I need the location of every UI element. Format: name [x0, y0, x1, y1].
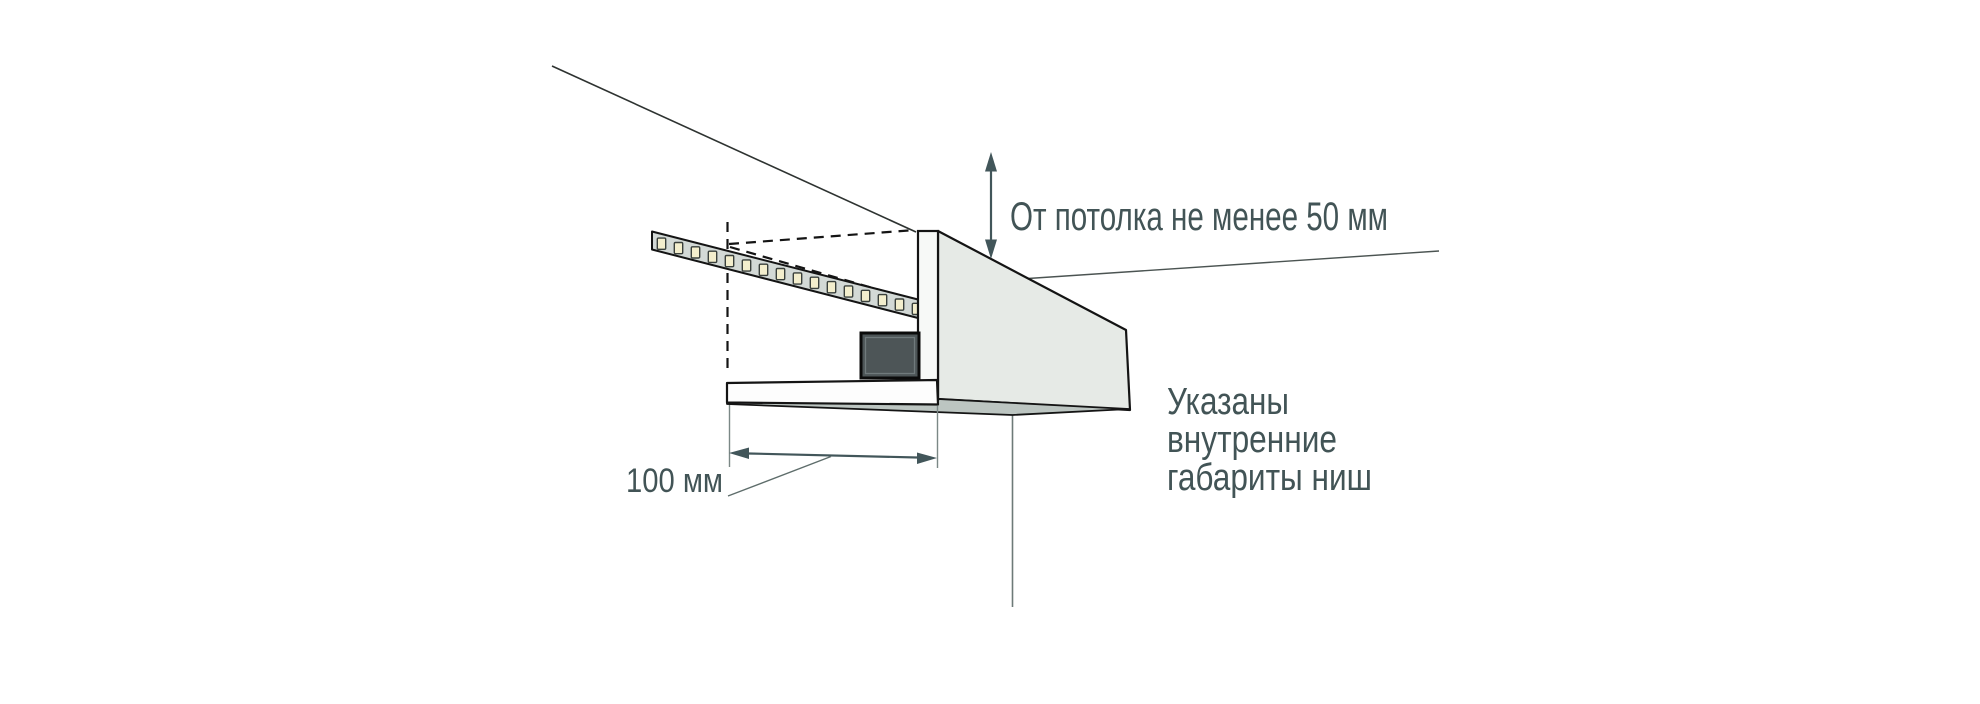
led-chip-icon	[844, 286, 852, 297]
niche-shelf	[727, 380, 938, 405]
led-chip-icon	[708, 251, 716, 262]
niche-lip-panel	[918, 231, 938, 400]
note-line-2: внутренние	[1167, 419, 1337, 461]
led-chip-icon	[776, 269, 784, 280]
arrowhead-right-icon	[917, 453, 937, 465]
led-chip-icon	[742, 260, 750, 271]
niche-diagram: От потолка не менее 50 мм 100 мм Указаны…	[0, 0, 1980, 704]
led-chip-icon	[878, 295, 886, 306]
led-chip-icon	[793, 273, 801, 284]
cornice-front-face	[938, 231, 1130, 410]
led-chip-icon	[810, 277, 818, 288]
led-chip-icon	[861, 290, 869, 301]
arrowhead-left-icon	[729, 448, 749, 460]
niche-width-dimension	[728, 405, 938, 496]
led-driver-box	[861, 333, 919, 378]
ceiling-clearance-label: От потолка не менее 50 мм	[1010, 195, 1388, 239]
led-chip-icon	[827, 282, 835, 293]
horizontal-dimension-shaft	[749, 454, 917, 458]
arrowhead-up-icon	[985, 152, 997, 172]
niche-width-label: 100 мм	[626, 462, 723, 500]
led-chip-icon	[895, 299, 903, 310]
led-chip-icon	[691, 247, 699, 258]
ceiling-edge-line-left	[552, 66, 916, 232]
note-line-1: Указаны	[1167, 381, 1289, 423]
led-strip	[652, 232, 921, 319]
note-line-3: габариты ниш	[1167, 457, 1372, 499]
diagram-canvas: От потолка не менее 50 мм 100 мм Указаны…	[0, 0, 1980, 704]
led-chip-icon	[759, 264, 767, 275]
led-chip-icon	[657, 238, 665, 249]
dashed-projection-line-top	[729, 230, 915, 244]
label-leader-line	[728, 457, 831, 497]
ceiling-clearance-dimension	[985, 152, 997, 259]
led-chip-icon	[674, 243, 682, 254]
inner-dimensions-note: Указаны внутренние габариты ниш	[1167, 381, 1372, 499]
driver-box-body	[861, 333, 919, 378]
led-chip-icon	[725, 256, 733, 267]
ceiling-edge-line-right	[1028, 251, 1439, 279]
